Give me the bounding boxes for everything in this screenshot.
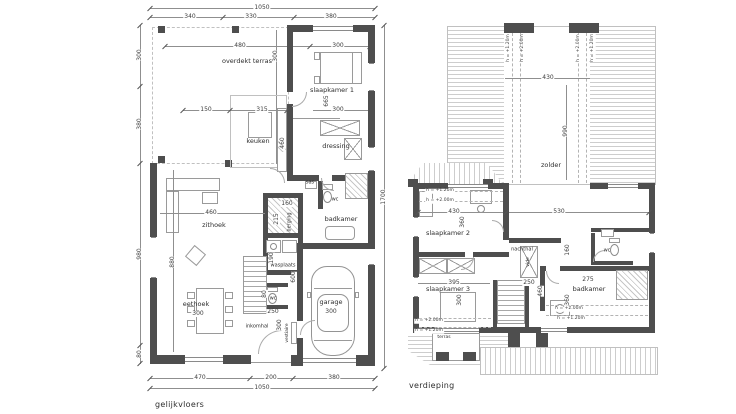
wall-segment: [287, 104, 293, 175]
height-line: [512, 33, 513, 183]
upper-floor-plan: h = +1.20m h = +2.00m h = +2.00m h = +1.…: [400, 0, 736, 414]
dim-label: 300: [137, 49, 143, 60]
terrace-post: [463, 352, 476, 361]
room-label-wc: wc: [604, 249, 611, 254]
coat-cabinet: [291, 322, 297, 344]
wall-segment: [368, 171, 375, 247]
wall-segment: [504, 23, 534, 33]
wall-segment: [223, 355, 251, 364]
dim-label: 160: [565, 244, 571, 255]
room-label-nachthal: nachthal: [511, 248, 533, 253]
dryer: [282, 240, 297, 253]
terrace-post: [232, 26, 239, 33]
dim-label: 480: [233, 43, 246, 49]
wall-segment: [591, 228, 649, 232]
toilet: [610, 244, 619, 256]
wall-segment: [356, 355, 375, 366]
toilet-tank: [609, 238, 620, 243]
room-label-badkamer: badkamer: [573, 286, 606, 293]
height-label: h = +2.00m: [425, 199, 455, 204]
room-label-inkomhal: inkomhal: [246, 325, 269, 330]
chair: [187, 292, 195, 299]
dim-label: 215: [274, 213, 280, 224]
window: [369, 247, 374, 265]
threshold-line: [251, 362, 291, 363]
terrace-post: [436, 352, 449, 361]
dim-label: 330: [244, 14, 257, 20]
dim-label: 150: [199, 107, 212, 113]
room-label-zolder: zolder: [541, 162, 561, 169]
wall-segment: [287, 25, 313, 32]
height-label: h = +2.00m: [577, 34, 582, 62]
car-line: [314, 288, 352, 289]
roof-plane-garage: [480, 347, 658, 375]
sofa: [166, 178, 220, 191]
window: [151, 237, 156, 278]
dim-label: 380: [137, 118, 143, 129]
door-arc: [292, 92, 307, 107]
dim-label: 80: [137, 350, 143, 358]
chair: [225, 306, 233, 313]
car-mirror: [307, 292, 311, 298]
washing-machine-door: [270, 243, 277, 250]
roof-plane-right: [590, 27, 655, 184]
dim-label: 1700: [381, 189, 387, 204]
plan-title-upper: verdieping: [409, 381, 454, 390]
dim-label: 160: [280, 201, 293, 207]
dim-label: 460: [280, 137, 286, 148]
dim-label: 470: [193, 375, 206, 381]
wall-segment: [569, 23, 599, 33]
bed: [320, 52, 362, 84]
room-label-badkamer: badkamer: [325, 216, 358, 223]
wall-segment: [150, 278, 157, 357]
bed: [419, 191, 433, 217]
wall-segment: [473, 252, 509, 257]
dim-label: 600: [291, 271, 297, 282]
door-arc: [258, 330, 282, 354]
dim-label: 360: [460, 216, 466, 227]
room-label-vide: vide: [527, 257, 532, 267]
window: [414, 217, 418, 237]
dim-label: 880: [170, 256, 176, 267]
dim-label: 530: [552, 209, 565, 215]
window: [414, 277, 418, 297]
dim-label: 430: [447, 209, 460, 215]
dim-label: 250: [522, 280, 535, 286]
floorplan-sheet: { "sheet": { "ground_title": "gelijkvloe…: [0, 0, 736, 414]
dim-label: 80: [262, 290, 268, 298]
dim-label: 300: [324, 309, 337, 315]
dim-label: 430: [541, 75, 554, 81]
kitchen-island: [248, 112, 272, 138]
height-label: h = +2.00m: [521, 34, 526, 62]
coffee-table: [202, 192, 218, 204]
wall-segment: [297, 249, 303, 321]
window: [313, 26, 353, 31]
wall-segment: [368, 265, 375, 366]
dim-label: 980: [137, 248, 143, 259]
dim-label: 300: [273, 50, 279, 61]
window: [650, 233, 654, 253]
wall-segment: [525, 280, 529, 328]
shower: [345, 173, 368, 199]
dim-tick: [137, 361, 143, 367]
car-line: [314, 340, 352, 341]
wall-segment: [567, 327, 655, 333]
wall-segment: [150, 163, 157, 237]
chair: [225, 320, 233, 327]
dimension-line: [150, 378, 375, 379]
height-label: h = +1.20m: [591, 34, 596, 62]
chair: [187, 320, 195, 327]
room-label-zithoek: zithoek: [202, 222, 226, 229]
dim-label: 250: [266, 309, 279, 315]
dim-label: 1050: [253, 5, 270, 11]
terrace-post: [158, 26, 165, 33]
ground-floor-plan: 1050 340 330 380 300 380 980 80 1700 470…: [0, 0, 400, 414]
wall-segment: [590, 183, 608, 189]
dim-label: 990: [563, 125, 569, 136]
nightstand: [314, 76, 320, 84]
room-label-keuken: keuken: [246, 138, 269, 145]
dim-label: 300: [331, 107, 344, 113]
height-label: h = +1.20m: [507, 34, 512, 62]
dim-label: 300: [191, 311, 204, 317]
window: [369, 147, 374, 171]
room-label-slaapkamer1: slaapkamer 1: [310, 87, 354, 94]
dim-tick: [372, 6, 378, 12]
dim-label: 380: [324, 14, 337, 20]
bathtub: [325, 226, 355, 240]
room-label-berging: berging: [288, 212, 293, 231]
garage-door: [303, 358, 356, 363]
height-label: h = +1.20m: [425, 189, 455, 194]
wall-segment: [509, 238, 561, 243]
car-mirror: [355, 292, 359, 298]
dim-tick: [372, 376, 378, 382]
dim-label: 340: [183, 14, 196, 20]
wall-segment: [263, 233, 303, 238]
height-line: [586, 33, 587, 183]
wall-segment: [297, 338, 303, 360]
wall-segment: [649, 253, 655, 333]
wall-segment: [413, 252, 465, 257]
height-label: h = +1.20m: [556, 317, 586, 322]
room-label-wc2: wc: [270, 297, 277, 302]
wall-segment: [287, 32, 293, 92]
door-arc: [300, 320, 315, 335]
room-label-garage: garage: [320, 299, 343, 306]
dim-label: 300: [277, 319, 283, 330]
dim-label: 300: [457, 294, 463, 305]
wall-segment: [368, 91, 375, 147]
room-label-vestiaire: vestiaire: [286, 323, 291, 342]
chair: [225, 292, 233, 299]
height-label: h = +2.00m: [414, 319, 444, 324]
nightstand: [314, 52, 320, 60]
staircase: [243, 256, 267, 314]
room-label-slaapkamer3: slaapkamer 3: [426, 286, 470, 293]
door-arc: [546, 271, 559, 284]
dim-label: 1050: [253, 385, 270, 391]
height-label: h = +1.20m: [414, 329, 444, 334]
dim-label: 380: [327, 375, 340, 381]
dim-label: 460: [204, 210, 217, 216]
armchair: [185, 245, 206, 266]
dim-label: 200: [264, 375, 277, 381]
wardrobe: [419, 258, 447, 274]
wall-segment: [368, 25, 375, 63]
wardrobe: [320, 120, 360, 136]
dim-tick: [381, 366, 387, 372]
room-label-dressing: dressing: [322, 143, 349, 150]
room-label-terras: overdekt terras: [222, 58, 272, 65]
staircase: [497, 280, 525, 324]
room-label-slaapkamer2: slaapkamer 2: [426, 230, 470, 237]
wall-segment: [297, 243, 375, 249]
window: [185, 357, 223, 362]
dim-tick: [372, 386, 378, 392]
wall-segment: [150, 355, 185, 364]
toilet-tank: [267, 287, 278, 292]
wall-segment: [638, 183, 655, 189]
terrace-post: [158, 156, 165, 163]
dim-tick: [372, 15, 378, 21]
dim-label: 300: [331, 43, 344, 49]
dim-label: 315: [255, 107, 268, 113]
dimension-line: [140, 25, 141, 364]
room-label-wc: wc: [332, 198, 339, 203]
window: [608, 184, 638, 188]
plan-title-ground: gelijkvloers: [155, 400, 204, 409]
dim-label: 360: [565, 294, 571, 305]
washbasin-cabinet: [601, 229, 614, 237]
room-label-terras: terras: [437, 336, 450, 341]
bed-line: [352, 52, 353, 84]
room-label-eethoek: eethoek: [183, 301, 209, 308]
room-label-sas: sas: [306, 181, 314, 186]
room-label-wasplaats: wasplaats: [270, 264, 295, 269]
dim-label: 275: [581, 277, 594, 283]
shower: [616, 270, 648, 300]
dimension-line: [509, 212, 649, 213]
partition-line: [293, 118, 340, 119]
height-label: h = +2.00m: [554, 307, 584, 312]
dim-label: 460: [538, 285, 544, 296]
roof-plane-left: [448, 27, 504, 184]
window: [541, 328, 567, 332]
window: [369, 63, 374, 91]
dim-label: 665: [324, 95, 330, 106]
